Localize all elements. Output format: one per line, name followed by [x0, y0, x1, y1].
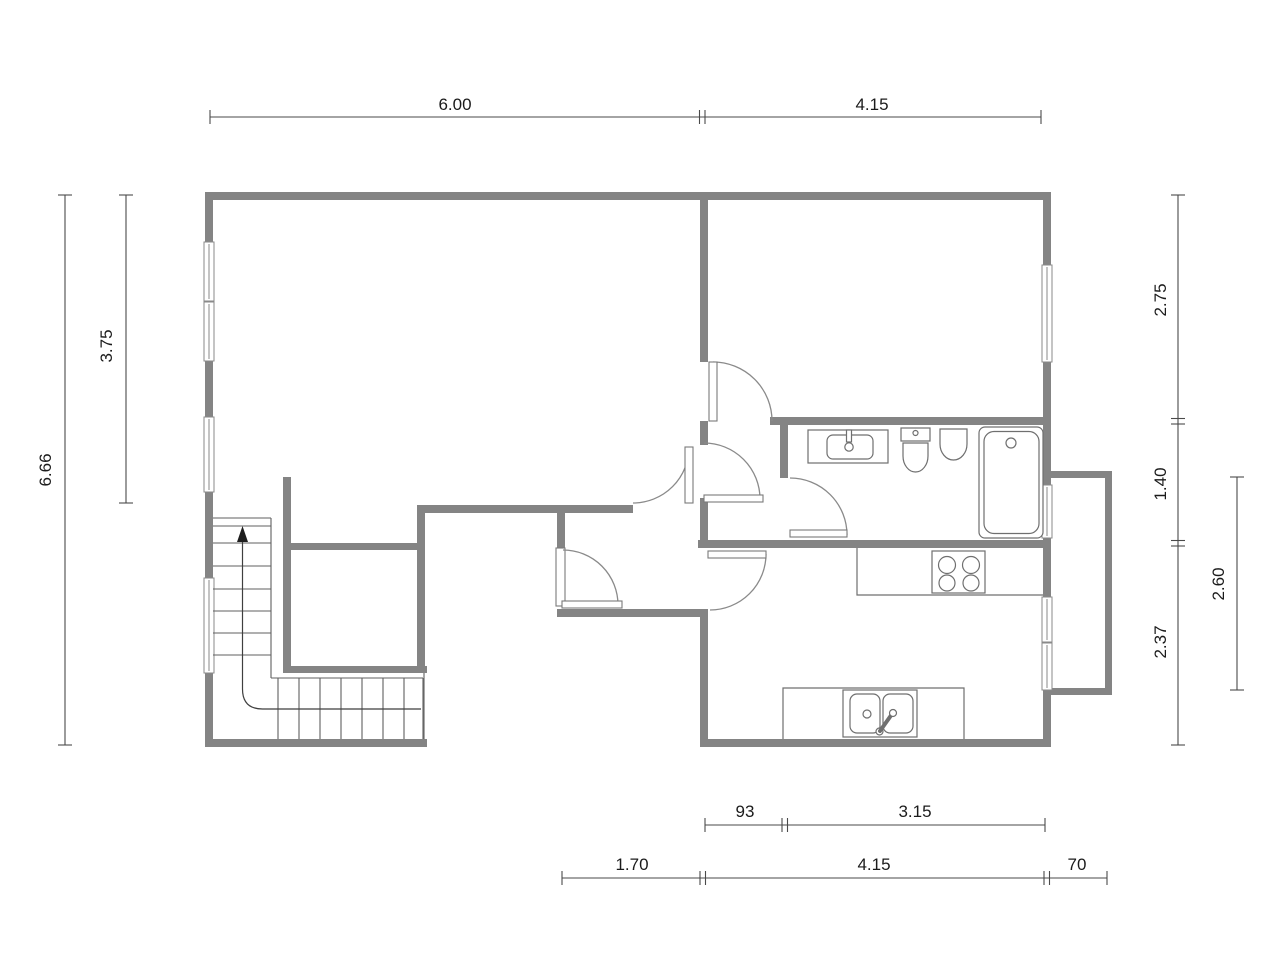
- window-icon: [204, 302, 214, 361]
- stair-direction-arrow-icon: [237, 526, 421, 709]
- dim-left-outer: 6.66: [36, 453, 55, 486]
- balcony-door-icon: [1042, 597, 1052, 642]
- dim-bottom-upper-right: 3.15: [898, 802, 931, 821]
- door-kitchen: [708, 551, 766, 610]
- bathroom-fixtures: [808, 427, 1043, 538]
- staircase: [213, 518, 423, 739]
- wall-balcony-top: [1051, 471, 1112, 478]
- wall-left-seg3: [205, 492, 213, 578]
- kitchen-sink-icon: [843, 690, 917, 737]
- wall-right-seg2: [1043, 362, 1051, 485]
- wall-hall-left: [557, 513, 565, 548]
- wall-spine-seg2: [700, 421, 708, 445]
- window-icon: [204, 578, 214, 673]
- window-icon: [204, 242, 214, 301]
- kitchen-fixtures: [783, 548, 1043, 739]
- wall-balcony-right: [1105, 471, 1112, 695]
- dim-bottom-upper-left: 93: [736, 802, 755, 821]
- wall-right-seg1: [1043, 192, 1051, 265]
- wall-bathroom-left-stub: [780, 417, 788, 478]
- dim-right-top: 2.75: [1151, 283, 1170, 316]
- window-icon: [204, 417, 214, 492]
- dim-right-middle: 1.40: [1151, 467, 1170, 500]
- wall-spine-seg4: [700, 609, 708, 739]
- vanity-sink-icon: [808, 430, 888, 463]
- wall-hall-top: [420, 505, 633, 513]
- walls: [205, 192, 1112, 747]
- wall-left-seg4: [205, 673, 213, 747]
- wall-top: [205, 192, 1051, 200]
- door-hall-living: [556, 548, 622, 608]
- dim-right-outer: 2.60: [1209, 567, 1228, 600]
- wall-closet-bottom: [283, 666, 427, 673]
- floor-plan-page: 6.00 4.15 6.66 3.75 2.75 1.40 2.37 2.60: [0, 0, 1280, 960]
- window-icon: [1042, 643, 1052, 690]
- dim-right-bottom: 2.37: [1151, 625, 1170, 658]
- wall-left-seg2: [205, 361, 213, 417]
- dim-top-right: 4.15: [855, 95, 888, 114]
- wall-bottom-left: [205, 739, 427, 747]
- bidet-icon: [940, 429, 967, 460]
- wall-balcony-bottom: [1051, 688, 1112, 695]
- door-anteroom: [704, 443, 763, 502]
- door-bedroom: [709, 362, 772, 421]
- dim-bottom-lower-middle: 4.15: [857, 855, 890, 874]
- door-living-room-upper: [633, 447, 693, 503]
- dim-left-inner: 3.75: [97, 329, 116, 362]
- window-icon: [1042, 265, 1052, 362]
- wall-bathroom-kitchen-divider: [698, 540, 1051, 548]
- bathtub-icon: [979, 427, 1043, 538]
- dim-bottom-lower-right: 70: [1068, 855, 1087, 874]
- wall-hall-bottom: [557, 609, 708, 617]
- wall-spine-seg1: [700, 200, 708, 362]
- cooktop-icon: [932, 551, 985, 593]
- dim-bottom-lower-left: 1.70: [615, 855, 648, 874]
- dimension-lines: 6.00 4.15 6.66 3.75 2.75 1.40 2.37 2.60: [36, 95, 1244, 885]
- dim-top-left: 6.00: [438, 95, 471, 114]
- wall-right-seg4: [1043, 690, 1051, 747]
- wall-bottom-right: [700, 739, 1051, 747]
- wall-closet-top: [283, 543, 425, 550]
- wall-closet-left: [283, 477, 291, 673]
- floor-plan-drawing: 6.00 4.15 6.66 3.75 2.75 1.40 2.37 2.60: [0, 0, 1280, 960]
- door-bathroom: [790, 478, 847, 537]
- toilet-icon: [901, 428, 930, 472]
- wall-bedroom-bathroom-divider: [770, 417, 1043, 425]
- doors: [556, 362, 847, 610]
- wall-left-seg1: [205, 192, 213, 242]
- wall-closet-right: [417, 505, 425, 673]
